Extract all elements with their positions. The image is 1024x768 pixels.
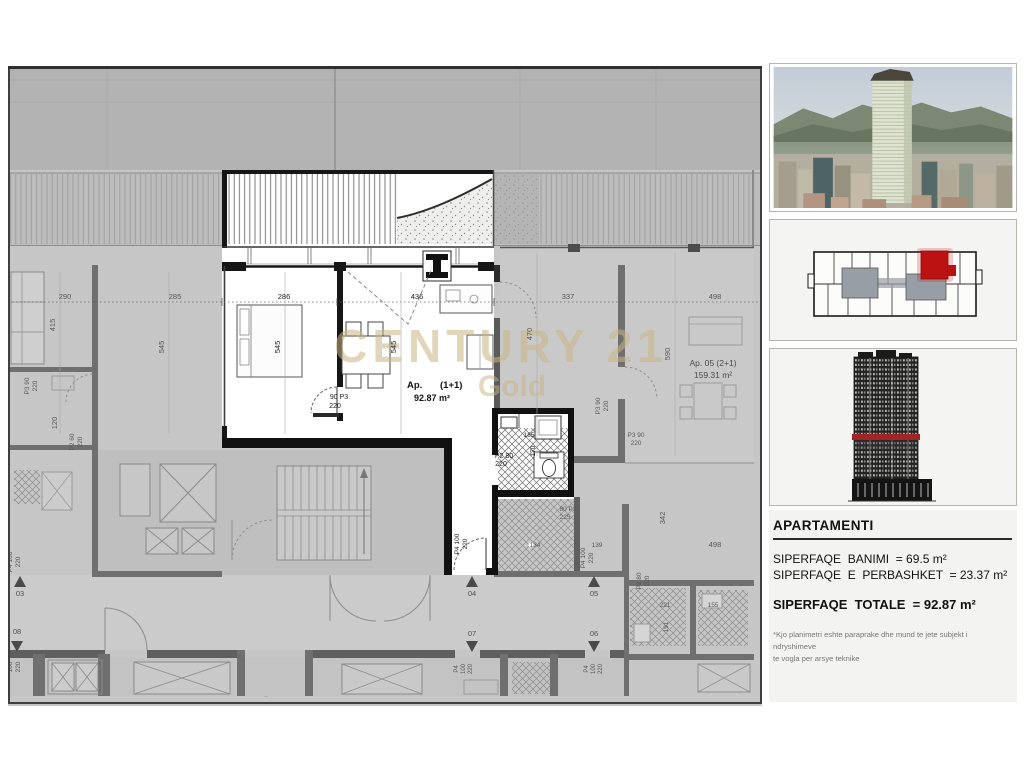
svg-text:221: 221 bbox=[660, 602, 671, 609]
svg-text:286: 286 bbox=[278, 292, 291, 301]
svg-text:P4 100: P4 100 bbox=[580, 547, 587, 568]
stairs bbox=[277, 466, 371, 560]
svg-text:80 P2: 80 P2 bbox=[560, 506, 577, 513]
svg-text:220: 220 bbox=[462, 538, 469, 549]
watermark-line2: Gold bbox=[478, 370, 546, 403]
svg-text:06: 06 bbox=[590, 629, 598, 638]
area-total: SIPERFAQE TOTALE = 92.87 m² bbox=[773, 597, 1012, 612]
svg-text:545: 545 bbox=[273, 341, 282, 354]
svg-text:134: 134 bbox=[530, 542, 541, 549]
svg-text:220: 220 bbox=[495, 461, 507, 468]
heading-rule bbox=[773, 538, 1012, 540]
svg-text:08: 08 bbox=[13, 627, 21, 636]
svg-text:225: 225 bbox=[560, 514, 571, 521]
area-line-perbashket: SIPERFAQE E PERBASHKET = 23.37 m² bbox=[773, 568, 1012, 582]
building-photo-panel bbox=[769, 63, 1017, 212]
svg-text:P3 90: P3 90 bbox=[24, 377, 31, 394]
svg-text:100: 100 bbox=[461, 663, 467, 674]
svg-text:342: 342 bbox=[658, 512, 667, 525]
keyplan-highlight-unit bbox=[917, 248, 956, 282]
floorplan-sheet: CENTURY 21 Gold Ap. (1+1) 92.87 m² Ap. 0… bbox=[8, 66, 762, 706]
svg-text:P3 90: P3 90 bbox=[595, 397, 602, 414]
disclaimer-note: *Kjo planimetri eshte paraprake dhe mund… bbox=[773, 629, 1012, 664]
info-heading: APARTAMENTI bbox=[773, 518, 1012, 533]
elevation-panel bbox=[769, 348, 1017, 506]
svg-text:P3 90: P3 90 bbox=[628, 432, 645, 439]
svg-text:220: 220 bbox=[598, 663, 604, 674]
disclaimer-note-line1: *Kjo planimetri eshte paraprake dhe mund… bbox=[773, 629, 1012, 653]
neighbor-area: 159.31 m² bbox=[694, 370, 732, 380]
svg-text:220: 220 bbox=[468, 663, 474, 674]
svg-text:P2 60: P2 60 bbox=[69, 433, 76, 450]
svg-text:220: 220 bbox=[631, 440, 642, 447]
svg-text:285: 285 bbox=[169, 292, 182, 301]
svg-text:498: 498 bbox=[709, 292, 722, 301]
elevation-floor-band bbox=[852, 434, 920, 440]
svg-text:04: 04 bbox=[468, 589, 476, 598]
svg-text:220: 220 bbox=[603, 400, 610, 411]
elevation-drawing bbox=[770, 349, 1016, 505]
area-line-banimi: SIPERFAQE BANIMI = 69.5 m² bbox=[773, 552, 1012, 566]
steel-column-icon bbox=[423, 251, 451, 281]
svg-text:436: 436 bbox=[411, 292, 424, 301]
svg-text:07: 07 bbox=[468, 629, 476, 638]
svg-text:191: 191 bbox=[663, 621, 670, 632]
apartment-type: (1+1) bbox=[440, 380, 462, 391]
svg-text:220: 220 bbox=[329, 403, 341, 410]
svg-text:220: 220 bbox=[15, 556, 22, 567]
apartment-area: 92.87 m² bbox=[414, 393, 450, 403]
apartment-prefix: Ap. bbox=[407, 380, 422, 391]
svg-text:155: 155 bbox=[708, 602, 719, 609]
svg-text:470: 470 bbox=[525, 328, 534, 341]
svg-text:220: 220 bbox=[77, 436, 84, 447]
listing-sheet: { "watermark": { "line1": "CENTURY 21", … bbox=[0, 0, 1024, 768]
svg-text:545: 545 bbox=[157, 341, 166, 354]
svg-text:498: 498 bbox=[709, 540, 722, 549]
svg-text:03: 03 bbox=[16, 589, 24, 598]
building-photo bbox=[773, 67, 1013, 208]
photo-main-tower bbox=[870, 69, 913, 203]
neighbor-name: Ap. 05 (2+1) bbox=[689, 358, 736, 368]
svg-text:05: 05 bbox=[590, 589, 598, 598]
svg-text:170: 170 bbox=[530, 445, 537, 456]
svg-text:220: 220 bbox=[588, 552, 595, 563]
svg-text:P2 80: P2 80 bbox=[636, 572, 643, 589]
watermark-line1: CENTURY 21 bbox=[334, 320, 668, 372]
svg-text:P4: P4 bbox=[584, 665, 590, 673]
svg-text:100: 100 bbox=[591, 663, 597, 674]
floorplan-drawing: CENTURY 21 Gold Ap. (1+1) 92.87 m² Ap. 0… bbox=[8, 66, 762, 706]
svg-text:P2 80: P2 80 bbox=[495, 453, 513, 460]
disclaimer-note-line2: te vogla per arsye teknike bbox=[773, 653, 1012, 665]
svg-text:120: 120 bbox=[50, 417, 59, 430]
svg-text:P4: P4 bbox=[454, 665, 460, 673]
building-core bbox=[98, 450, 444, 575]
svg-text:337: 337 bbox=[562, 292, 575, 301]
svg-text:139: 139 bbox=[592, 542, 603, 549]
svg-text:220: 220 bbox=[644, 575, 651, 586]
apartment-info: APARTAMENTI SIPERFAQE BANIMI = 69.5 m² S… bbox=[769, 510, 1017, 702]
svg-text:415: 415 bbox=[48, 319, 57, 332]
svg-text:545: 545 bbox=[389, 341, 398, 354]
keyplan-drawing bbox=[770, 220, 1016, 340]
svg-text:185: 185 bbox=[524, 432, 535, 439]
svg-text:220: 220 bbox=[15, 661, 22, 672]
svg-text:290: 290 bbox=[59, 292, 72, 301]
svg-text:P4 100: P4 100 bbox=[454, 533, 461, 554]
keyplan-panel bbox=[769, 219, 1017, 341]
svg-text:590: 590 bbox=[663, 348, 672, 361]
svg-text:220: 220 bbox=[32, 380, 39, 391]
svg-text:90 P3: 90 P3 bbox=[330, 394, 348, 401]
